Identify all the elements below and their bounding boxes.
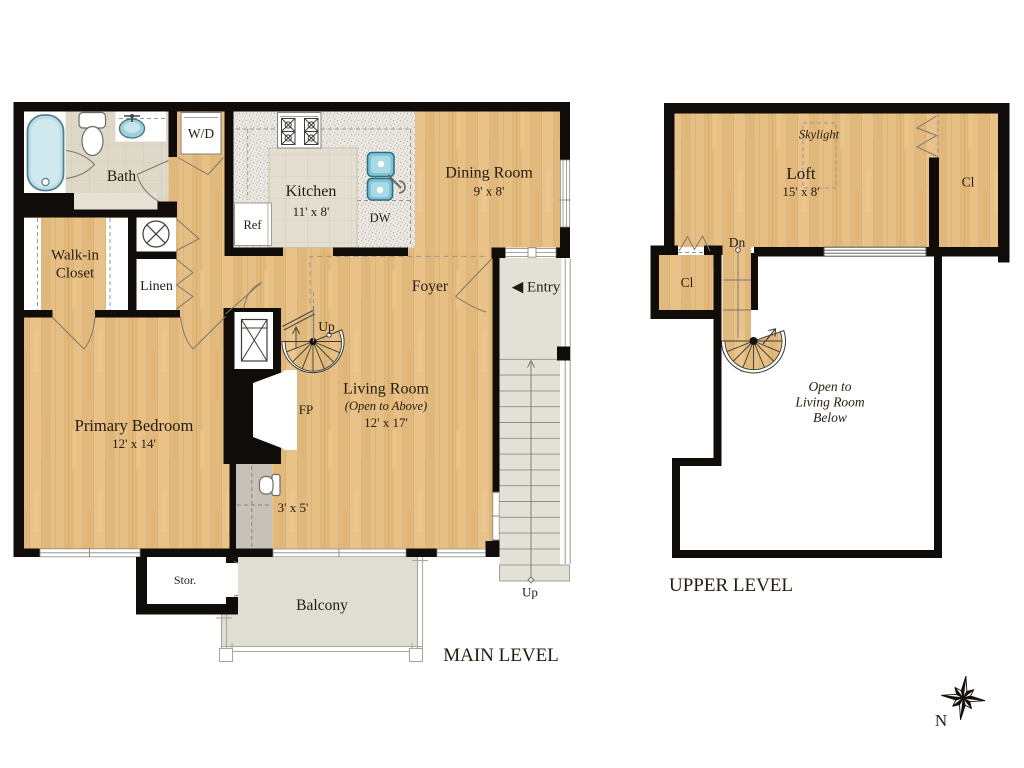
svg-text:Dn: Dn — [729, 235, 746, 250]
svg-text:Stor.: Stor. — [174, 573, 196, 587]
svg-text:Loft: Loft — [786, 164, 816, 183]
svg-text:Up: Up — [522, 585, 538, 600]
svg-text:W/D: W/D — [188, 126, 214, 141]
svg-text:Skylight: Skylight — [799, 128, 840, 142]
svg-text:12' x 14': 12' x 14' — [112, 436, 156, 451]
svg-text:Up: Up — [318, 319, 335, 334]
svg-text:Bath: Bath — [107, 168, 137, 185]
svg-text:FP: FP — [299, 402, 313, 417]
svg-text:Cl: Cl — [681, 275, 694, 290]
svg-text:11' x 8': 11' x 8' — [293, 204, 330, 219]
svg-text:(Open to Above): (Open to Above) — [345, 399, 427, 413]
svg-text:Foyer: Foyer — [412, 278, 449, 295]
svg-text:Closet: Closet — [56, 266, 95, 282]
svg-text:Cl: Cl — [962, 175, 975, 190]
svg-text:◀ Entry: ◀ Entry — [512, 280, 561, 296]
svg-text:N: N — [935, 711, 947, 730]
svg-text:Kitchen: Kitchen — [286, 183, 337, 200]
svg-text:12' x 17': 12' x 17' — [364, 415, 408, 430]
svg-text:MAIN LEVEL: MAIN LEVEL — [443, 645, 559, 666]
svg-text:Balcony: Balcony — [296, 597, 348, 614]
svg-text:Living Room: Living Room — [794, 395, 865, 410]
svg-text:Walk-in: Walk-in — [51, 248, 99, 264]
svg-text:Open to: Open to — [808, 379, 851, 394]
svg-text:Primary Bedroom: Primary Bedroom — [75, 416, 194, 435]
svg-text:Dining Room: Dining Room — [445, 165, 533, 182]
svg-text:9' x 8': 9' x 8' — [474, 184, 505, 199]
svg-text:Below: Below — [813, 410, 847, 425]
svg-text:UPPER LEVEL: UPPER LEVEL — [669, 575, 793, 596]
svg-text:Ref: Ref — [243, 218, 262, 232]
svg-text:Linen: Linen — [140, 279, 173, 294]
svg-text:DW: DW — [370, 211, 391, 225]
svg-text:Living Room: Living Room — [343, 381, 429, 398]
svg-text:3' x 5': 3' x 5' — [278, 500, 309, 515]
svg-text:15' x 8': 15' x 8' — [782, 184, 819, 199]
